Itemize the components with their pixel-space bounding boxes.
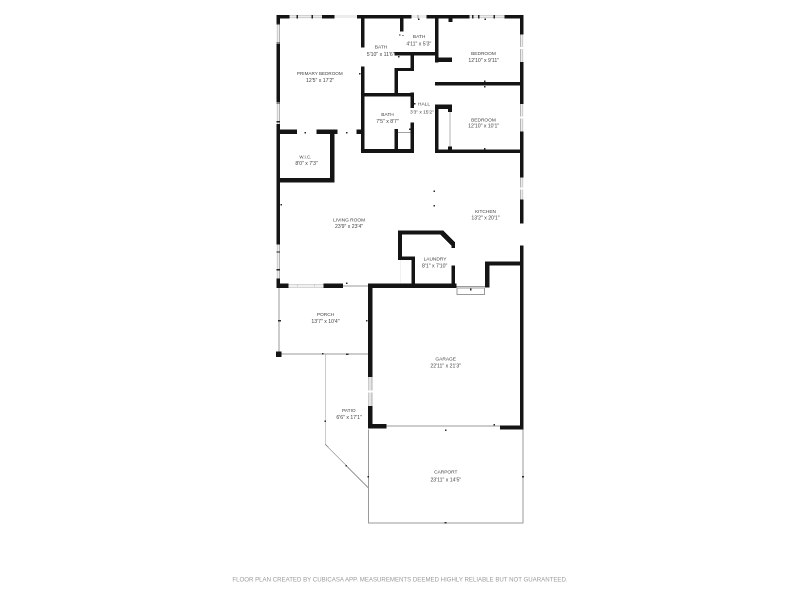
svg-text:GARAGE: GARAGE — [435, 357, 456, 363]
svg-text:7'5" x 8'7": 7'5" x 8'7" — [376, 119, 399, 125]
svg-text:6'6" x 17'1": 6'6" x 17'1" — [336, 415, 362, 421]
svg-text:23'9" x 23'4": 23'9" x 23'4" — [335, 224, 363, 230]
svg-text:PATIO: PATIO — [342, 408, 356, 414]
svg-text:12'5" x 17'2": 12'5" x 17'2" — [306, 78, 334, 84]
svg-text:BEDROOM: BEDROOM — [471, 51, 496, 57]
svg-text:3'3" x 15'2": 3'3" x 15'2" — [410, 109, 434, 115]
svg-text:LAUNDRY: LAUNDRY — [424, 257, 448, 263]
svg-text:W.I.C.: W.I.C. — [299, 155, 311, 160]
svg-text:8'0" x 7'3": 8'0" x 7'3" — [295, 161, 318, 167]
svg-text:4'11" x 5'3": 4'11" x 5'3" — [406, 42, 431, 48]
svg-text:12'10" x 10'1": 12'10" x 10'1" — [468, 124, 499, 130]
svg-text:23'11" x 14'5": 23'11" x 14'5" — [430, 477, 461, 483]
svg-text:13'2" x 20'1": 13'2" x 20'1" — [471, 216, 499, 222]
svg-text:22'11" x 21'3": 22'11" x 21'3" — [430, 364, 461, 370]
svg-text:FLOOR PLAN CREATED BY CUBICASA: FLOOR PLAN CREATED BY CUBICASA APP. MEAS… — [232, 576, 567, 583]
svg-text:13'7" x 10'4": 13'7" x 10'4" — [311, 319, 339, 325]
svg-text:BATH: BATH — [381, 112, 394, 118]
svg-text:BEDROOM: BEDROOM — [471, 117, 496, 123]
svg-text:LIVING ROOM: LIVING ROOM — [333, 217, 365, 223]
svg-text:8'1" x 7'10": 8'1" x 7'10" — [422, 264, 448, 270]
svg-text:PRIMARY BEDROOM: PRIMARY BEDROOM — [297, 71, 343, 76]
svg-text:HALL: HALL — [418, 102, 430, 108]
svg-text:CARPORT: CARPORT — [434, 470, 457, 476]
svg-text:PORCH: PORCH — [317, 312, 335, 318]
svg-text:KITCHEN: KITCHEN — [475, 209, 497, 215]
svg-text:BATH: BATH — [413, 34, 426, 40]
svg-text:12'10" x 9'11": 12'10" x 9'11" — [468, 58, 499, 64]
svg-text:BATH: BATH — [375, 45, 388, 51]
svg-text:5'10" x 11'6": 5'10" x 11'6" — [367, 52, 395, 58]
